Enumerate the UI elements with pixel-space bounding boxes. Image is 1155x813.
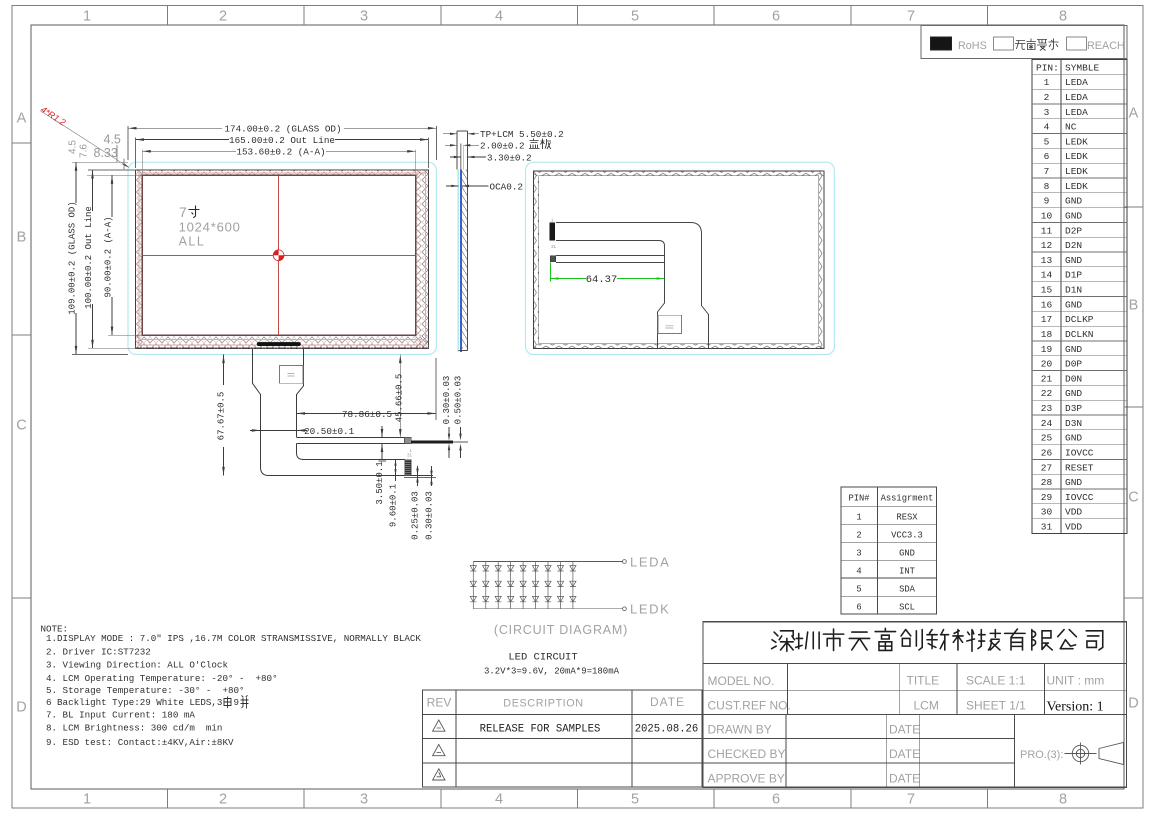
svg-text:2025.08.26: 2025.08.26: [635, 724, 699, 736]
svg-text:8.33: 8.33: [94, 146, 118, 160]
svg-text:9.60±0.1: 9.60±0.1: [389, 484, 399, 527]
svg-text:78.86±0.5: 78.86±0.5: [342, 409, 392, 420]
svg-text:NC: NC: [1065, 122, 1077, 133]
svg-text:2: 2: [219, 792, 227, 808]
svg-text:9: 9: [1044, 196, 1050, 207]
svg-text:D2N: D2N: [1065, 240, 1082, 251]
svg-text:TP+LCM 5.50±0.2: TP+LCM 5.50±0.2: [480, 129, 564, 140]
svg-text:SCALE 1:1: SCALE 1:1: [966, 674, 1026, 688]
svg-text:SDA: SDA: [899, 585, 916, 595]
svg-text:A: A: [17, 111, 27, 127]
svg-text:RELEASE FOR SAMPLES: RELEASE FOR SAMPLES: [480, 724, 601, 736]
svg-text:PRO.(3):: PRO.(3):: [1020, 749, 1063, 761]
svg-text:2: 2: [1044, 92, 1050, 103]
svg-text:0.30±0.03: 0.30±0.03: [425, 491, 435, 540]
svg-text:3: 3: [360, 792, 368, 808]
svg-text:7: 7: [907, 792, 915, 808]
svg-text:LCM: LCM: [914, 699, 939, 713]
svg-text:26: 26: [1041, 447, 1053, 458]
svg-text:DATE: DATE: [889, 723, 920, 737]
svg-text:MODEL NO.: MODEL NO.: [708, 674, 775, 688]
svg-text:8. LCM Brightness: 300 cd/m m: 8. LCM Brightness: 300 cd/m min: [41, 723, 223, 734]
svg-text:VCC3.3: VCC3.3: [891, 531, 923, 541]
svg-text:D: D: [1128, 696, 1138, 712]
svg-text:4. LCM Operating Temperature:: 4. LCM Operating Temperature: -20° - +80…: [41, 673, 278, 684]
svg-text:7. BL Input Current: 180 mA: 7. BL Input Current: 180 mA: [41, 710, 196, 721]
svg-text:GND: GND: [899, 549, 915, 559]
svg-text:0.25±0.03: 0.25±0.03: [411, 491, 421, 540]
svg-text:IOVCC: IOVCC: [1065, 447, 1094, 458]
svg-text:8: 8: [1059, 9, 1067, 25]
svg-text:GND: GND: [1065, 299, 1082, 310]
svg-text:PIN#: PIN#: [848, 494, 869, 504]
svg-text:9. ESD test: Contact:±4KV,Air:: 9. ESD test: Contact:±4KV,Air:±8KV: [41, 737, 234, 748]
svg-text:LEDA: LEDA: [1065, 77, 1088, 88]
svg-text:LED CIRCUIT: LED CIRCUIT: [508, 652, 577, 664]
svg-text:SHEET 1/1: SHEET 1/1: [966, 699, 1026, 713]
svg-text:45.66±0.5: 45.66±0.5: [395, 374, 405, 423]
svg-text:174.00±0.2 (GLASS OD): 174.00±0.2 (GLASS OD): [224, 123, 341, 134]
svg-text:3. Viewing Direction: ALL O'Cl: 3. Viewing Direction: ALL O'Clock: [41, 660, 229, 671]
svg-text:TITLE: TITLE: [907, 674, 940, 688]
svg-text:RoHS: RoHS: [958, 40, 987, 52]
svg-text:0.50±0.03: 0.50±0.03: [454, 376, 464, 425]
svg-text:SYMBLE: SYMBLE: [1065, 62, 1100, 73]
svg-text:20.50±0.1: 20.50±0.1: [304, 426, 355, 437]
svg-text:14: 14: [1041, 270, 1053, 281]
svg-text:22: 22: [1041, 388, 1053, 399]
svg-text:31: 31: [1041, 522, 1053, 533]
svg-text:3.30±0.2: 3.30±0.2: [487, 152, 532, 163]
svg-text:C: C: [16, 418, 26, 434]
svg-text:4.5: 4.5: [104, 133, 121, 147]
svg-text:67.67±0.5: 67.67±0.5: [217, 392, 227, 441]
svg-text:4: 4: [495, 792, 503, 808]
svg-text:REV: REV: [427, 696, 452, 710]
svg-text:4: 4: [1044, 122, 1050, 133]
svg-text:3: 3: [1044, 107, 1050, 118]
svg-text:CHECKED BY: CHECKED BY: [708, 747, 786, 761]
svg-text:12: 12: [1041, 240, 1053, 251]
svg-text:REACH: REACH: [1087, 40, 1125, 52]
svg-text:DCLKN: DCLKN: [1065, 329, 1094, 340]
svg-text:3.50±0.1: 3.50±0.1: [375, 461, 385, 504]
svg-text:1: 1: [856, 513, 861, 523]
svg-text:2.00±0.2: 2.00±0.2: [480, 141, 525, 152]
svg-text:21: 21: [1041, 373, 1053, 384]
svg-text:CUST.REF NO.: CUST.REF NO.: [708, 699, 791, 713]
svg-text:4: 4: [495, 9, 503, 25]
svg-text:D0P: D0P: [1065, 359, 1082, 370]
svg-text:1: 1: [83, 9, 91, 25]
svg-text:30: 30: [1041, 507, 1053, 518]
svg-text:GND: GND: [1065, 255, 1082, 266]
svg-text:10: 10: [1041, 210, 1053, 221]
svg-text:6: 6: [772, 9, 780, 25]
svg-text:8: 8: [1059, 792, 1067, 808]
svg-text:90.00±0.2 (A-A): 90.00±0.2 (A-A): [104, 216, 114, 297]
svg-text:165.00±0.2 Out Line: 165.00±0.2 Out Line: [229, 135, 335, 146]
svg-text:Version: 1: Version: 1: [1047, 700, 1104, 715]
svg-text:20: 20: [1041, 359, 1053, 370]
svg-text:28: 28: [1041, 477, 1053, 488]
svg-text:18: 18: [1041, 329, 1053, 340]
svg-text:A: A: [1129, 106, 1139, 122]
svg-text:D1N: D1N: [1065, 285, 1082, 296]
svg-text:INT: INT: [899, 567, 915, 577]
svg-text:7: 7: [1044, 166, 1050, 177]
svg-text:4.5: 4.5: [68, 140, 79, 154]
svg-text:17: 17: [1041, 314, 1052, 325]
svg-text:23: 23: [1041, 403, 1053, 414]
svg-text:2. Driver IC:ST7232: 2. Driver IC:ST7232: [41, 647, 151, 658]
svg-text:IOVCC: IOVCC: [1065, 492, 1094, 503]
svg-text:DATE: DATE: [889, 772, 920, 786]
svg-text:D0N: D0N: [1065, 373, 1082, 384]
svg-text:D2P: D2P: [1065, 225, 1082, 236]
svg-text:GND: GND: [1065, 210, 1082, 221]
svg-text:LEDK: LEDK: [1065, 136, 1088, 147]
svg-text:19: 19: [1041, 344, 1053, 355]
svg-text:6: 6: [856, 603, 861, 613]
svg-text:31: 31: [551, 244, 557, 249]
svg-text:GND: GND: [1065, 196, 1082, 207]
svg-text:LEDA: LEDA: [630, 555, 670, 570]
svg-text:5: 5: [856, 585, 861, 595]
svg-text:27: 27: [1041, 462, 1052, 473]
svg-text:5. Storage Temperature: -30° -: 5. Storage Temperature: -30° - +80°: [41, 685, 245, 696]
svg-text:3.2V*3=9.6V, 20mA*9=180mA: 3.2V*3=9.6V, 20mA*9=180mA: [484, 667, 620, 677]
svg-text:LEDK: LEDK: [1065, 166, 1088, 177]
svg-text:1.DISPLAY MODE : 7.0" IPS ,16.: 1.DISPLAY MODE : 7.0" IPS ,16.7M COLOR S…: [41, 633, 422, 644]
svg-text:DATE: DATE: [650, 695, 685, 709]
svg-text:D1P: D1P: [1065, 270, 1082, 281]
svg-text:DCLKP: DCLKP: [1065, 314, 1094, 325]
svg-text:GND: GND: [1065, 388, 1082, 399]
svg-text:1: 1: [83, 792, 91, 808]
svg-text:GND: GND: [1065, 433, 1082, 444]
svg-text:2: 2: [856, 531, 861, 541]
svg-text:D3P: D3P: [1065, 403, 1082, 414]
svg-text:15: 15: [1041, 285, 1053, 296]
svg-text:5: 5: [1044, 136, 1050, 147]
svg-text:LEDK: LEDK: [630, 602, 670, 617]
svg-text:109.00±0.2 (GLASS OD): 109.00±0.2 (GLASS OD): [68, 201, 78, 314]
svg-text:29: 29: [1041, 492, 1053, 503]
svg-text:1024*600: 1024*600: [179, 220, 241, 235]
svg-text:31: 31: [407, 453, 413, 458]
svg-text:25: 25: [1041, 433, 1053, 444]
svg-text:1: 1: [1044, 77, 1050, 88]
svg-text:11: 11: [1041, 225, 1053, 236]
svg-text:ALL: ALL: [179, 235, 206, 249]
svg-text:C: C: [1128, 490, 1138, 506]
svg-text:OCA0.2: OCA0.2: [490, 181, 523, 192]
svg-text:B: B: [17, 230, 27, 246]
svg-text:5: 5: [631, 792, 639, 808]
svg-text:3: 3: [856, 549, 861, 559]
svg-text:8: 8: [1044, 181, 1050, 192]
svg-text:B: B: [1129, 298, 1139, 314]
svg-text:LEDA: LEDA: [1065, 92, 1088, 103]
svg-text:13: 13: [1041, 255, 1053, 266]
svg-text:7.6: 7.6: [79, 144, 90, 158]
svg-text:APPROVE BY: APPROVE BY: [708, 772, 785, 786]
svg-text:0.30±0.03: 0.30±0.03: [442, 376, 452, 425]
svg-text:2: 2: [219, 9, 227, 25]
svg-text:6 Backlight Type:29 White LEDS: 6 Backlight Type:29 White LEDS,3: [41, 697, 223, 708]
svg-text:6: 6: [1044, 151, 1050, 162]
svg-text:16: 16: [1041, 299, 1053, 310]
svg-text:RESX: RESX: [896, 513, 918, 523]
svg-text:DESCRIPTION: DESCRIPTION: [503, 698, 583, 710]
svg-text:LEDA: LEDA: [1065, 107, 1088, 118]
svg-text:6: 6: [772, 792, 780, 808]
svg-text:4: 4: [856, 567, 861, 577]
svg-text:VDD: VDD: [1065, 522, 1082, 533]
svg-text:RESET: RESET: [1065, 462, 1094, 473]
svg-text:7: 7: [179, 204, 187, 220]
svg-text:DATE: DATE: [889, 747, 920, 761]
svg-text:100.00±0.2 Out Line: 100.00±0.2 Out Line: [84, 206, 94, 309]
svg-text:LEDK: LEDK: [1065, 151, 1088, 162]
svg-text:GND: GND: [1065, 344, 1082, 355]
svg-text:PIN:: PIN:: [1036, 62, 1059, 73]
svg-text:UNIT : mm: UNIT : mm: [1047, 674, 1105, 688]
svg-text:9: 9: [234, 697, 240, 708]
svg-text:LEDK: LEDK: [1065, 181, 1088, 192]
svg-text:3: 3: [360, 9, 368, 25]
svg-text:DRAWN BY: DRAWN BY: [708, 723, 772, 737]
svg-text:D: D: [16, 700, 26, 716]
svg-text:64.37: 64.37: [586, 274, 618, 286]
svg-text:SCL: SCL: [899, 603, 915, 613]
svg-text:5: 5: [631, 9, 639, 25]
svg-text:24: 24: [1041, 418, 1053, 429]
svg-text:D3N: D3N: [1065, 418, 1082, 429]
svg-text:GND: GND: [1065, 477, 1082, 488]
svg-text:153.60±0.2 (A-A): 153.60±0.2 (A-A): [236, 147, 325, 158]
svg-text:Assigrment: Assigrment: [881, 494, 934, 504]
svg-text:VDD: VDD: [1065, 507, 1082, 518]
svg-text:7: 7: [907, 9, 915, 25]
svg-text:(CIRCUIT DIAGRAM): (CIRCUIT DIAGRAM): [494, 623, 628, 637]
